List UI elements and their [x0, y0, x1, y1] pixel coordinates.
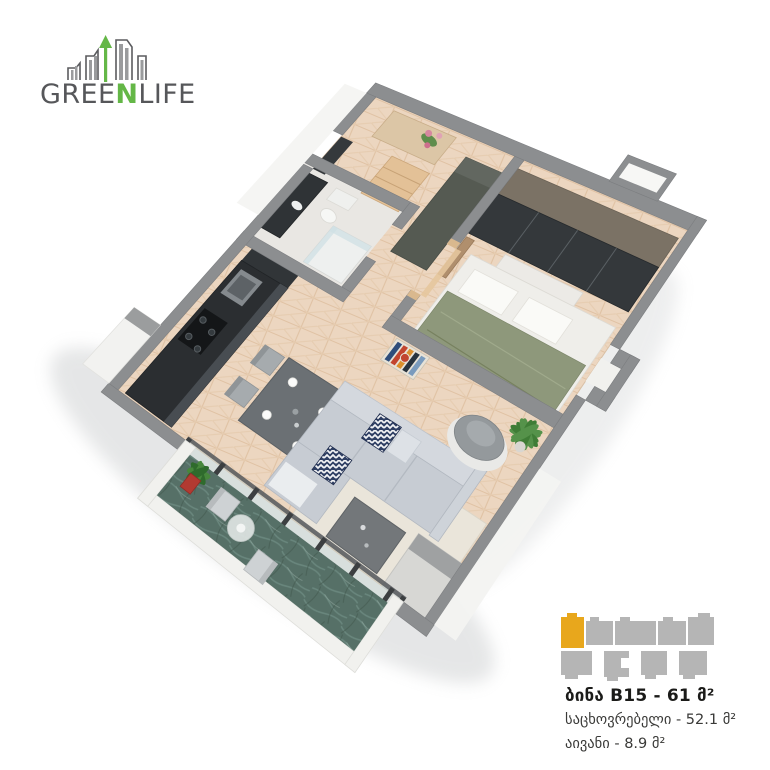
console-flower	[425, 130, 432, 137]
unit-living-area: საცხოვრებელი - 52.1 მ²	[565, 710, 765, 731]
cooktop-burner	[186, 333, 192, 339]
logo-text-life: LIFE	[138, 79, 195, 108]
logo-text-gree: GREE	[40, 79, 115, 108]
unit-title: ბინა B15 - 61 მ²	[565, 686, 765, 706]
footprint-block	[658, 621, 686, 645]
footprint-block	[688, 617, 714, 645]
logo-building-small	[68, 63, 80, 80]
logo-arrow-icon	[99, 35, 112, 82]
balcony-table-center	[236, 524, 245, 533]
footprint-block	[565, 675, 578, 679]
console-flower	[424, 142, 430, 148]
footprint-highlighted-unit	[561, 617, 584, 648]
cooktop-burner	[200, 317, 206, 323]
unit-info-panel: ბინა B15 - 61 მ² საცხოვრებელი - 52.1 მ² …	[565, 686, 765, 758]
footprint-block	[641, 651, 667, 675]
artwork-dot	[400, 353, 409, 362]
footprint-block	[561, 651, 592, 675]
table-centerpiece	[294, 423, 299, 428]
greenlife-logo: GREENLIFE	[38, 16, 208, 108]
footprint-block	[607, 677, 618, 681]
footprint-block	[679, 651, 707, 675]
footprint-block	[683, 675, 695, 679]
console-flower	[436, 133, 442, 139]
corner-plant-pot	[515, 441, 526, 452]
dinner-plate	[262, 410, 271, 419]
footprint-block-notched	[604, 651, 629, 677]
cooktop-burner	[209, 329, 215, 335]
footprint-block	[645, 675, 656, 679]
logo-building-tall	[116, 40, 132, 80]
cooktop-burner	[194, 346, 200, 352]
coffee-table-decor	[364, 543, 368, 547]
unit-balcony-area: აივანი - 8.9 მ²	[565, 734, 765, 755]
coffee-table-decor	[360, 525, 365, 530]
logo-wordmark: GREENLIFE	[40, 79, 196, 108]
logo-text-n: N	[115, 79, 138, 108]
building-footprint-diagram	[556, 610, 722, 684]
table-centerpiece	[292, 409, 298, 415]
floorplan-page: GREENLIFE ბინა B15 - 61 მ² საცხ	[0, 0, 770, 770]
footprint-block	[615, 621, 656, 645]
footprint-block	[586, 621, 613, 645]
dinner-plate	[288, 378, 297, 387]
